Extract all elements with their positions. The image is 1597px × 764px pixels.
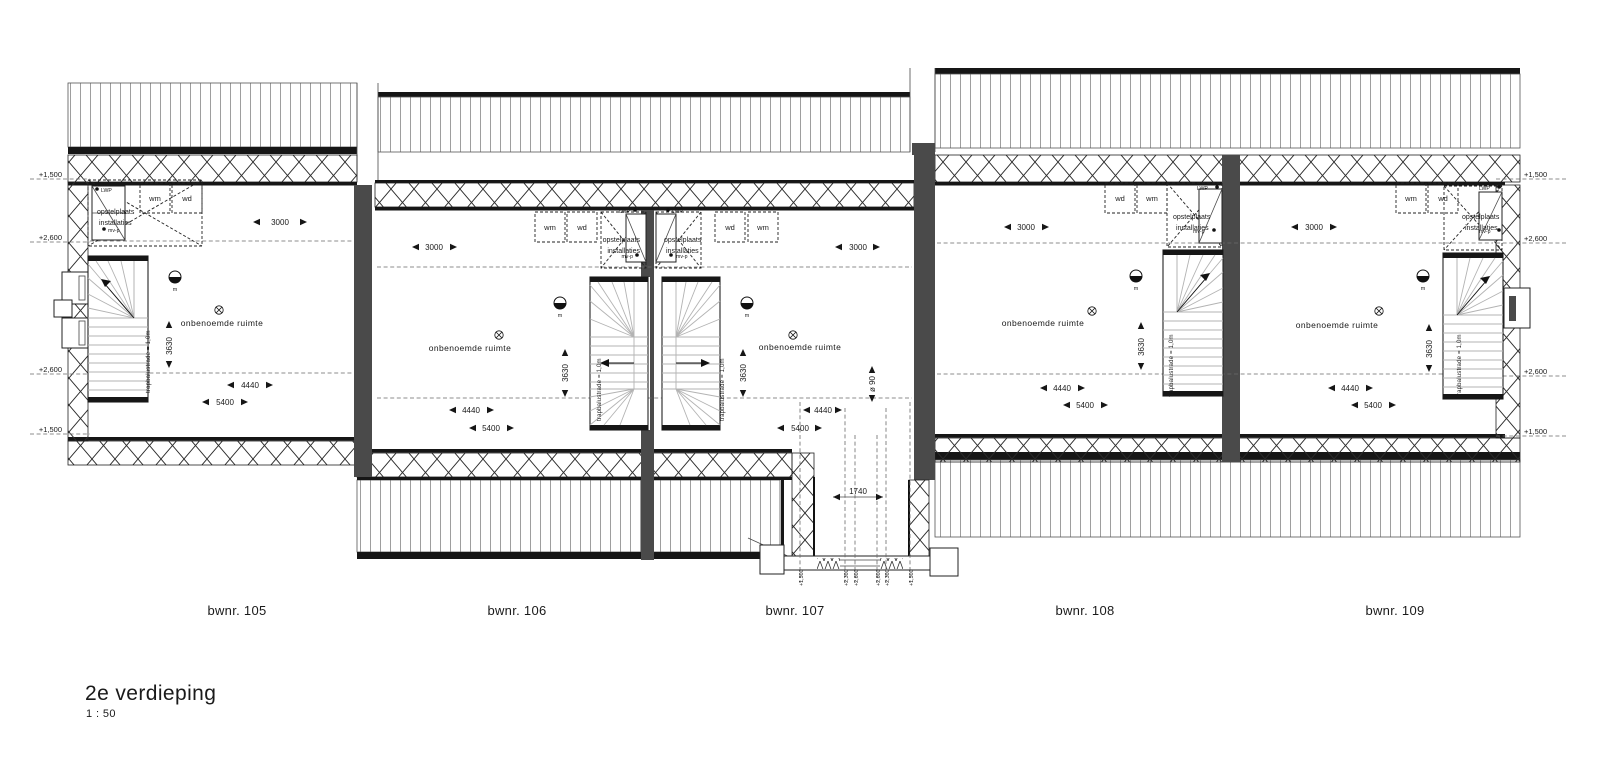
- dim-3000: 3000: [849, 243, 867, 252]
- dim-5400: 5400: [1364, 401, 1382, 410]
- dim-3000: 3000: [271, 218, 289, 227]
- meter-symbol: [169, 271, 181, 283]
- dim-5400: 5400: [216, 398, 234, 407]
- roof-mid-bottom: [357, 480, 780, 552]
- dim-4440: 4440: [814, 406, 832, 415]
- dim-3000: 3000: [425, 243, 443, 252]
- wall-face: [357, 477, 792, 480]
- wm-box-109: wm: [1404, 194, 1417, 203]
- meter-symbol: [1130, 270, 1142, 282]
- lwp-label: LWP: [101, 188, 112, 194]
- roof-left-top: [68, 83, 357, 147]
- dim-3630: 3630: [1137, 338, 1146, 356]
- dim-3630: 3630: [165, 337, 174, 355]
- floor-plan-drawing: LWP opstelplaats installaties mv-p LWP o…: [0, 0, 1597, 764]
- wd-box-108: wd: [1114, 194, 1125, 203]
- roof-mid-top: [378, 97, 910, 152]
- wm-box-108: wm: [1145, 194, 1158, 203]
- level-left-2600-top: +2,600: [39, 233, 62, 242]
- balustrade-note-106: trapbalustrade = 1,0m: [597, 358, 603, 421]
- stair-unit107: [662, 277, 720, 430]
- light-point-symbol: [1088, 307, 1096, 315]
- room-label-108: onbenoemde ruimte: [1002, 318, 1084, 328]
- stair-unit109: [1443, 253, 1503, 399]
- install-label-1: opstelplaats: [97, 209, 135, 216]
- install-label-1: opstelplaats: [603, 237, 641, 244]
- protrusion-corner-right: [930, 548, 958, 576]
- dim-3630: 3630: [561, 364, 570, 382]
- wall-face: [935, 434, 1505, 438]
- drawing-title: 2e verdieping: [85, 682, 216, 705]
- level-left-1500-top: +1,500: [39, 170, 62, 179]
- mvp-label: mv-p: [1479, 229, 1491, 235]
- protrusion-corner-left: [760, 545, 784, 574]
- dim-5400: 5400: [1076, 401, 1094, 410]
- unit-labels: bwnr. 105 bwnr. 106 bwnr. 107 bwnr. 108 …: [207, 603, 1424, 618]
- dim-3630: 3630: [1425, 340, 1434, 358]
- level-gutter-3: +2,600: [854, 569, 860, 586]
- wall-face: [357, 449, 792, 453]
- unit-label-106: bwnr. 106: [487, 603, 546, 618]
- wd-box-105: wd: [181, 194, 192, 203]
- level-right-1500-bottom: +1,500: [1524, 427, 1547, 436]
- meter-label: m: [1134, 286, 1139, 292]
- meter-symbol: [741, 297, 753, 309]
- protrusion-wall-right: [909, 480, 929, 557]
- window-left-2: [62, 318, 88, 348]
- level-left-2600-bottom: +2,600: [39, 365, 62, 374]
- lwp-label: LWP: [672, 209, 683, 215]
- roof-mid-bottom-eave: [357, 552, 780, 559]
- dim-3000: 3000: [1305, 223, 1323, 232]
- wall-bottom-unit105: [68, 441, 357, 465]
- level-right-1500-top: +1,500: [1524, 170, 1547, 179]
- room-label-105: onbenoemde ruimte: [181, 318, 263, 328]
- install-zone-107: LWP opstelplaats installaties mv-p: [656, 208, 702, 268]
- level-gutter-4: +2,600: [876, 569, 882, 586]
- dim-4440: 4440: [241, 381, 259, 390]
- wm-box-107: wm: [756, 223, 769, 232]
- light-point-symbol: [215, 306, 223, 314]
- wall-face: [68, 437, 357, 441]
- install-zone-109: LWP opstelplaats installaties mv-p: [1444, 185, 1502, 250]
- dim-5400: 5400: [482, 424, 500, 433]
- level-gutter-5: +2,300: [885, 569, 891, 586]
- roof-right-top: [935, 74, 1520, 148]
- dim-4440: 4440: [1053, 384, 1071, 393]
- level-gutter-1: +1,500: [799, 569, 805, 586]
- light-point-symbol: [1375, 307, 1383, 315]
- install-label-1: opstelplaats: [1173, 214, 1211, 221]
- window-right: [1504, 288, 1530, 328]
- party-wall-108-109: [1222, 155, 1240, 462]
- lwp-label: LWP: [1479, 186, 1490, 192]
- wall-face: [375, 180, 914, 183]
- wall-top-unit105: [68, 155, 357, 182]
- drawing-scale: 1 : 50: [86, 708, 116, 720]
- lwp-label: LWP: [619, 209, 630, 215]
- dim-3630: 3630: [739, 364, 748, 382]
- wall-face: [68, 182, 357, 186]
- party-wall-107-108: [914, 155, 935, 480]
- balustrade-note-109: trapbalustrade = 1,0m: [1457, 334, 1463, 397]
- protrusion-wall-left: [792, 453, 814, 557]
- dim-d90: ø 90: [868, 375, 877, 392]
- install-label-2: installaties: [99, 220, 132, 227]
- wall-top-units106-107: [375, 183, 914, 207]
- meter-symbol: [1417, 270, 1429, 282]
- level-gutter-6: +1,500: [909, 569, 915, 586]
- unit-label-105: bwnr. 105: [207, 603, 266, 618]
- wm-box-106: wm: [543, 223, 556, 232]
- mvp-label: mv-p: [108, 228, 120, 234]
- unit-label-109: bwnr. 109: [1365, 603, 1424, 618]
- level-right-2600-bottom: +2,600: [1524, 367, 1547, 376]
- balustrade-note-108: trapbalustrade = 1,0m: [1169, 334, 1175, 397]
- room-label-106: onbenoemde ruimte: [429, 343, 511, 353]
- stair-unit105: [88, 256, 148, 402]
- wd-box-106: wd: [576, 223, 587, 232]
- unit-label-107: bwnr. 107: [765, 603, 824, 618]
- floor-plan-sheet: LWP opstelplaats installaties mv-p LWP o…: [0, 0, 1597, 764]
- dim-4440: 4440: [462, 406, 480, 415]
- roof-left-eave: [68, 147, 357, 154]
- install-zone-106: LWP opstelplaats installaties mv-p: [601, 208, 646, 268]
- mvp-label: mv-p: [621, 254, 633, 260]
- roof-right-ridge: [935, 68, 1520, 74]
- wall-face: [375, 207, 914, 211]
- balustrade-note-107: trapbalustrade = 1,0m: [720, 358, 726, 421]
- protrusion-window-assembly: [783, 556, 935, 570]
- install-label-1: opstelplaats: [664, 237, 702, 244]
- gable-cap: [912, 143, 935, 155]
- wd-box-109: wd: [1437, 194, 1448, 203]
- party-wall-105-106: [354, 185, 372, 477]
- window-left-1: [62, 272, 88, 304]
- window-frame: [1509, 296, 1516, 321]
- mvp-label: mv-p: [676, 254, 688, 260]
- mvp-label: mv-p: [1193, 229, 1205, 235]
- room-label-107: onbenoemde ruimte: [759, 342, 841, 352]
- room-label-109: onbenoemde ruimte: [1296, 320, 1378, 330]
- wall-bottom-units106-107: [357, 453, 792, 477]
- dim-5400: 5400: [791, 424, 809, 433]
- level-gutter-2: +2,300: [844, 569, 850, 586]
- light-point-symbol: [495, 331, 503, 339]
- window-left-sill: [54, 300, 72, 317]
- install-zone-108: LWP opstelplaats installaties mv-p: [1167, 183, 1222, 247]
- meter-label: m: [173, 287, 178, 293]
- balustrade-note-105: trapbalustrade = 1,0m: [146, 330, 152, 393]
- level-right-2600-top: +2,600: [1524, 234, 1547, 243]
- level-left-1500-bottom: +1,500: [39, 425, 62, 434]
- wm-box-105: wm: [148, 194, 161, 203]
- title-block: 2e verdieping 1 : 50: [85, 682, 216, 720]
- dim-3000: 3000: [1017, 223, 1035, 232]
- roof-mid-ridge: [378, 92, 910, 97]
- window-insulation: [880, 558, 903, 569]
- meter-label: m: [1421, 286, 1426, 292]
- window-insulation: [817, 558, 840, 569]
- meter-label: m: [558, 313, 563, 319]
- roof-right-bottom: [935, 460, 1520, 537]
- unit-label-108: bwnr. 108: [1055, 603, 1114, 618]
- lwp-label: LWP: [1197, 186, 1208, 192]
- meter-symbol: [554, 297, 566, 309]
- light-point-symbol: [789, 331, 797, 339]
- install-label-1: opstelplaats: [1462, 214, 1500, 221]
- wd-box-107: wd: [724, 223, 735, 232]
- staircases: [88, 250, 1503, 430]
- meter-label: m: [745, 313, 750, 319]
- dim-1740: 1740: [849, 487, 867, 496]
- dim-4440: 4440: [1341, 384, 1359, 393]
